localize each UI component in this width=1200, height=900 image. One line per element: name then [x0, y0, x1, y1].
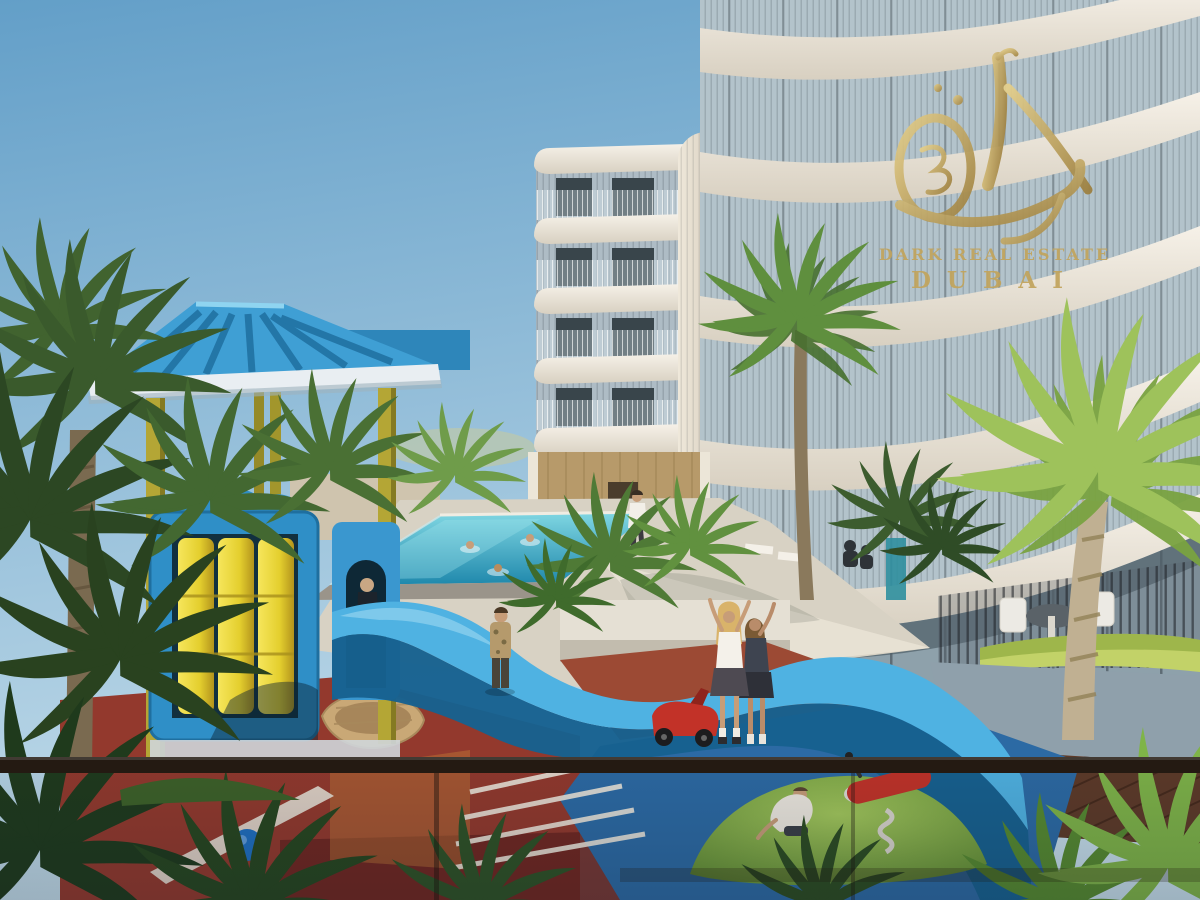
balcony-slab — [534, 144, 686, 174]
glass-joint — [434, 772, 439, 900]
balcony-slab — [534, 214, 686, 244]
roller-cylinder — [218, 538, 254, 714]
balcony-slab — [534, 354, 686, 384]
balcony-slab — [534, 284, 686, 314]
architectural-render: DARK REAL ESTATE DUBAI — [0, 0, 1200, 900]
platform-beam — [150, 740, 400, 758]
watermark-brand: DARK REAL ESTATE — [879, 245, 1111, 264]
balcony-slab — [534, 424, 686, 456]
watermark-city: DUBAI — [911, 267, 1079, 294]
foreground-railing — [0, 757, 1200, 900]
cafe-chair — [1000, 598, 1026, 632]
